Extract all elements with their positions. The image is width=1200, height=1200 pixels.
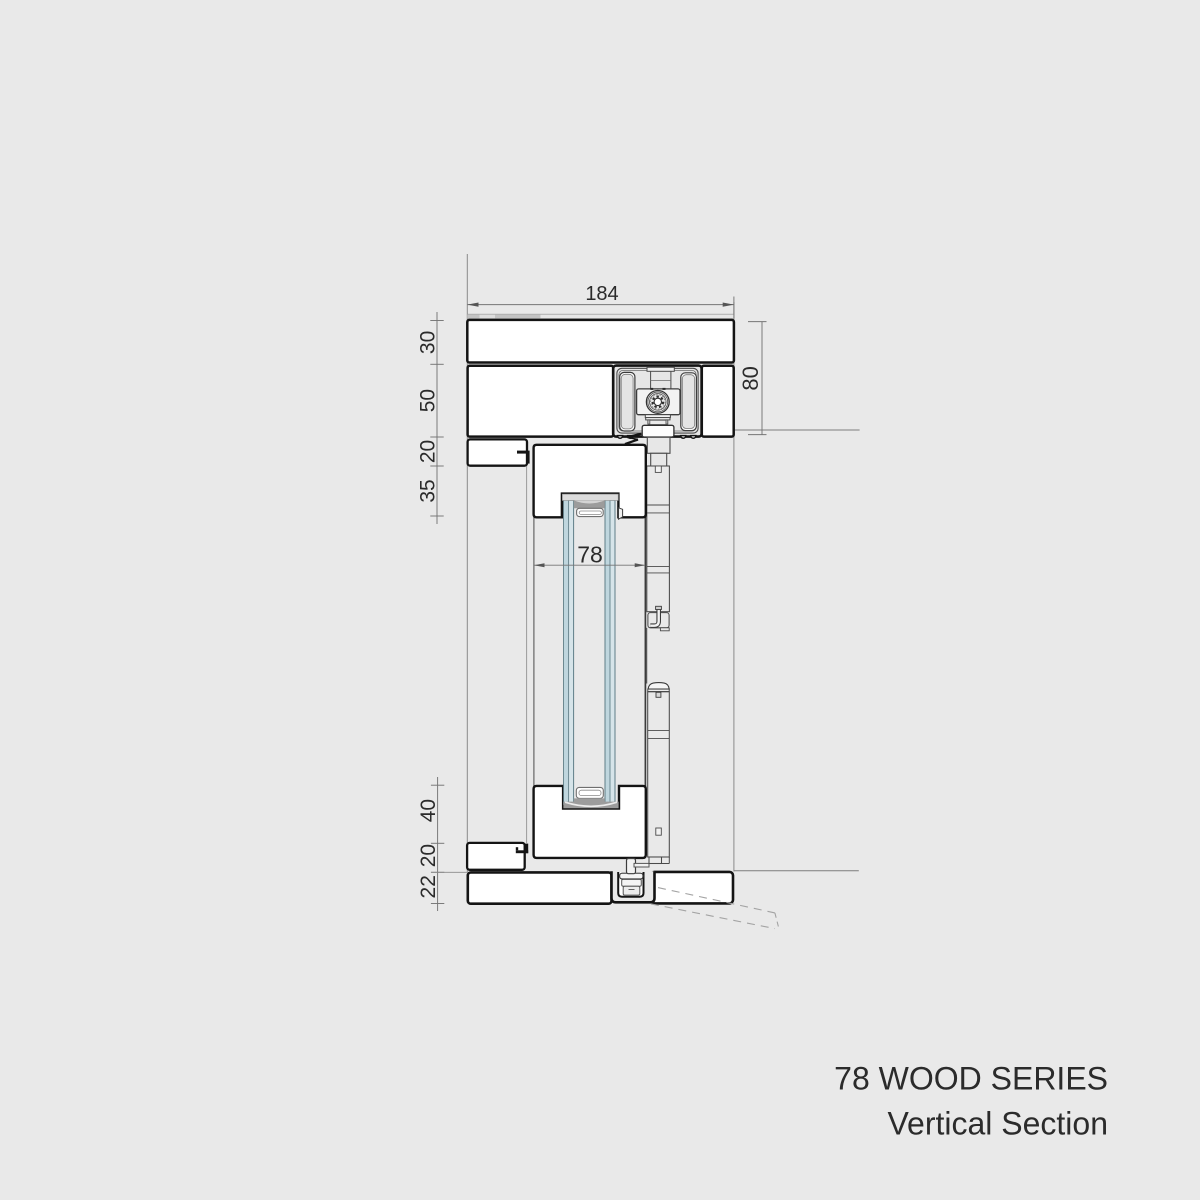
- svg-text:Vertical Section: Vertical Section: [887, 1106, 1108, 1142]
- svg-text:78 WOOD SERIES: 78 WOOD SERIES: [834, 1061, 1108, 1097]
- svg-text:78: 78: [577, 542, 603, 568]
- svg-text:20: 20: [417, 440, 440, 463]
- svg-text:35: 35: [417, 479, 440, 502]
- svg-text:20: 20: [417, 844, 440, 867]
- svg-text:184: 184: [585, 283, 618, 305]
- svg-text:50: 50: [417, 389, 440, 412]
- svg-text:80: 80: [738, 366, 763, 390]
- svg-text:30: 30: [417, 331, 440, 354]
- svg-text:40: 40: [417, 799, 440, 822]
- svg-text:22: 22: [417, 875, 440, 898]
